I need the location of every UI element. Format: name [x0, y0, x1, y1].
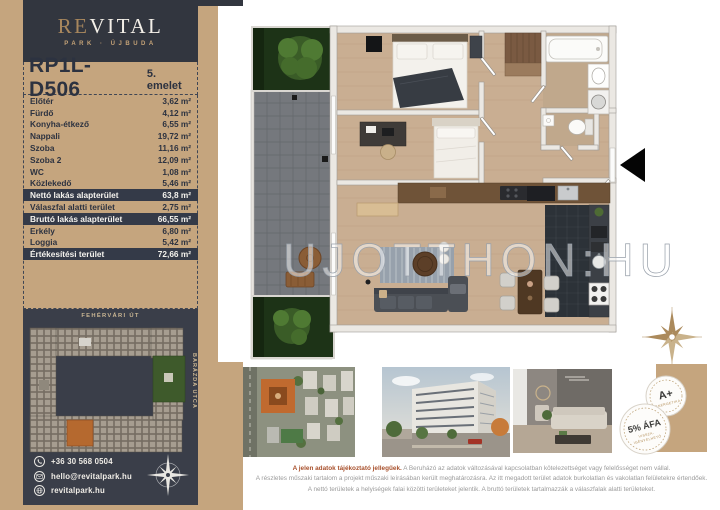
- disclaimer-line2: A részletes műszaki tartalom a projekt m…: [243, 474, 720, 484]
- disclaimer-line1-text: A Beruházó az adatok változásával kapcso…: [403, 465, 670, 472]
- area-label: Bruttó lakás alapterület: [30, 214, 122, 224]
- area-value: 2,75 m²: [162, 202, 191, 212]
- table-row: Válaszfal alatti terület2,75 m²: [24, 201, 197, 213]
- table-row: Közlekedő5,46 m²: [24, 178, 197, 190]
- badges: A+ ENERGETIKA 5% ÁFA VISSZA- IGÉNYELHETŐ: [610, 360, 712, 460]
- vat-badge: 5% ÁFA VISSZA- IGÉNYELHETŐ: [620, 404, 670, 454]
- area-label: Szoba: [30, 143, 54, 153]
- site-plan: [23, 322, 198, 456]
- core-block: [79, 338, 91, 346]
- area-value: 4,12 m²: [162, 108, 191, 118]
- wardrobe: [505, 33, 541, 76]
- unit-title-row: RP1L-D506 5. emelet: [23, 62, 198, 95]
- entrance-arrow: [620, 148, 645, 182]
- watermark-text: UJOTTHON:HU: [283, 234, 679, 286]
- disclaimer-intro: A jelen adatok tájékoztató jellegűek.: [293, 465, 402, 472]
- table-row: Konyha-étkező6,55 m²: [24, 119, 197, 131]
- area-table: Előtér3,62 m² Fürdő4,12 m² Konyha-étkező…: [23, 95, 198, 309]
- unit-code: RP1L-D506: [29, 54, 138, 102]
- table-row: Fürdő4,12 m²: [24, 107, 197, 119]
- website-url: revitalpark.hu: [51, 486, 105, 495]
- table-row: WC1,08 m²: [24, 166, 197, 178]
- brand-wordmark-right: VITAL: [90, 14, 164, 38]
- area-label: Konyha-étkező: [30, 119, 89, 129]
- brand-wordmark-left: RE: [58, 14, 90, 38]
- core-block: [39, 380, 49, 390]
- site-map-panel: FEHÉRVÁRI ÚT BARÁZDA UTCA: [23, 309, 198, 505]
- compass-rose-plan: [642, 307, 702, 365]
- contact-list: +36 30 568 0504 hello@revitalpark.hu rev…: [34, 456, 132, 496]
- street-label-top: FEHÉRVÁRI ÚT: [23, 313, 198, 319]
- area-label: Nappali: [30, 131, 60, 141]
- area-label: Előtér: [30, 96, 54, 106]
- unit-floor: 5. emelet: [147, 68, 192, 92]
- area-label: Loggia: [30, 237, 57, 247]
- area-value: 5,42 m²: [162, 237, 191, 247]
- area-value: 3,62 m²: [162, 96, 191, 106]
- table-row: Nappali19,72 m²: [24, 130, 197, 142]
- area-value: 6,55 m²: [162, 119, 191, 129]
- table-row-sales-area: Értékesítési terület72,66 m²: [23, 248, 198, 260]
- brand-wordmark: REVITAL: [58, 16, 164, 37]
- planter-bottom: [252, 296, 334, 358]
- contact-email[interactable]: hello@revitalpark.hu: [34, 471, 132, 482]
- garden-detail: [164, 373, 173, 382]
- highlighted-unit: [67, 420, 93, 446]
- contact-website[interactable]: revitalpark.hu: [34, 485, 132, 496]
- area-label: Nettó lakás alapterület: [30, 190, 119, 200]
- area-label: Erkély: [30, 226, 55, 236]
- area-value: 72,66 m²: [158, 249, 191, 259]
- disclaimer-line1: A jelen adatok tájékoztató jellegűek. A …: [243, 464, 720, 474]
- thumbnail-aerial-view: [243, 367, 355, 457]
- area-value: 6,80 m²: [162, 226, 191, 236]
- thumbnail-building-render: [382, 367, 510, 457]
- planter-top: [252, 27, 334, 91]
- floor-plan: UJOTTHON:HU: [218, 0, 720, 365]
- table-row-net-area: Nettó lakás alapterület63,8 m²: [23, 189, 198, 201]
- sidebar: REVITAL PARK · ÚJBUDA RP1L-D506 5. emele…: [23, 0, 198, 510]
- area-value: 19,72 m²: [158, 131, 191, 141]
- table-row: Szoba11,16 m²: [24, 142, 197, 154]
- area-label: Válaszfal alatti terület: [30, 202, 115, 212]
- compass-rose-sidebar: [145, 448, 191, 498]
- contact-phone[interactable]: +36 30 568 0504: [34, 456, 132, 467]
- table-row: Szoba 212,09 m²: [24, 154, 197, 166]
- phone-number: +36 30 568 0504: [51, 457, 113, 466]
- area-value: 5,46 m²: [162, 178, 191, 188]
- email-address: hello@revitalpark.hu: [51, 472, 132, 481]
- area-label: Értékesítési terület: [30, 249, 104, 259]
- table-row-gross-area: Bruttó lakás alapterület66,55 m²: [23, 213, 198, 225]
- area-value: 12,09 m²: [158, 155, 191, 165]
- disclaimer: A jelen adatok tájékoztató jellegűek. A …: [243, 464, 720, 495]
- area-value: 63,8 m²: [162, 190, 191, 200]
- area-label: WC: [30, 167, 44, 177]
- phone-icon: [34, 456, 45, 467]
- globe-icon: [34, 485, 45, 496]
- area-value: 1,08 m²: [162, 167, 191, 177]
- area-value: 66,55 m²: [158, 214, 191, 224]
- email-icon: [34, 471, 45, 482]
- brand-subtitle: PARK · ÚJBUDA: [64, 41, 156, 47]
- area-value: 11,16 m²: [158, 143, 191, 153]
- area-label: Közlekedő: [30, 178, 72, 188]
- table-row: Loggia5,42 m²: [24, 237, 197, 249]
- table-row: Erkély6,80 m²: [24, 225, 197, 237]
- area-label: Fürdő: [30, 108, 54, 118]
- street-label-right: BARÁZDA UTCA: [191, 353, 197, 409]
- disclaimer-line3: A nettó területek a helyiségek falai köz…: [243, 485, 720, 495]
- area-label: Szoba 2: [30, 155, 61, 165]
- brand-logo: REVITAL PARK · ÚJBUDA: [23, 0, 198, 62]
- thumbnail-interior-render: [513, 369, 612, 453]
